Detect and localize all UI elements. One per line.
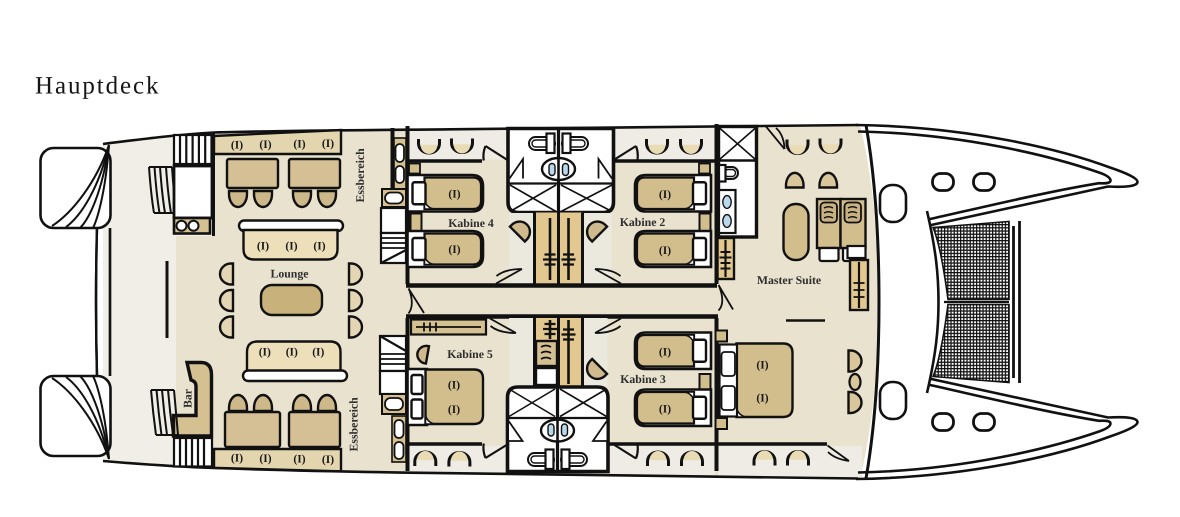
svg-text:(I): (I) [756,393,768,405]
svg-text:Essbereich: Essbereich [347,397,361,452]
svg-text:(I): (I) [659,347,671,359]
svg-text:(I): (I) [285,241,297,253]
svg-text:(I): (I) [448,189,460,201]
svg-text:(I): (I) [659,189,671,201]
svg-text:(I): (I) [322,454,334,466]
svg-text:(I): (I) [286,347,298,359]
svg-text:Kabine 5: Kabine 5 [447,347,493,361]
svg-text:(I): (I) [231,140,243,152]
svg-text:(I): (I) [259,139,271,151]
svg-text:Master Suite: Master Suite [757,273,821,287]
svg-text:Kabine 3: Kabine 3 [620,372,666,386]
svg-text:(I): (I) [313,241,325,253]
svg-text:(I): (I) [659,245,671,257]
svg-text:(I): (I) [448,404,460,416]
svg-text:(I): (I) [257,241,269,253]
svg-text:Hauptdeck: Hauptdeck [35,73,160,100]
svg-text:Kabine 4: Kabine 4 [448,216,494,230]
svg-text:Kabine 2: Kabine 2 [620,215,666,229]
svg-text:(I): (I) [259,347,271,359]
svg-text:Bar: Bar [181,389,195,408]
svg-text:(I): (I) [756,360,768,372]
svg-text:(I): (I) [659,404,671,416]
svg-text:(I): (I) [259,453,271,465]
svg-text:(I): (I) [312,347,324,359]
svg-text:Essbereich: Essbereich [353,148,367,203]
svg-text:(I): (I) [293,139,305,151]
svg-text:(I): (I) [322,138,334,150]
svg-text:Lounge: Lounge [270,267,308,281]
svg-text:(I): (I) [448,244,460,256]
svg-text:(I): (I) [448,380,460,392]
svg-text:(I): (I) [231,453,243,465]
svg-text:(I): (I) [293,454,305,466]
